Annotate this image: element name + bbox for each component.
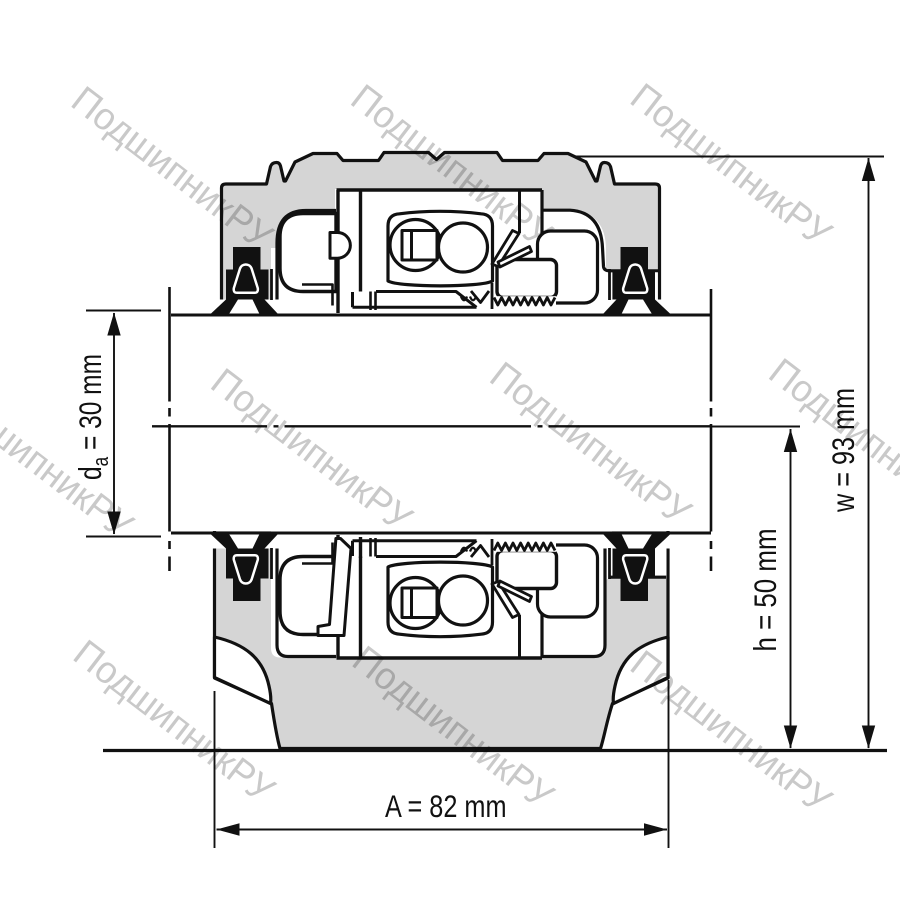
svg-text:h = 50 mm: h = 50 mm	[747, 529, 783, 652]
svg-text:A = 82 mm: A = 82 mm	[385, 788, 507, 824]
